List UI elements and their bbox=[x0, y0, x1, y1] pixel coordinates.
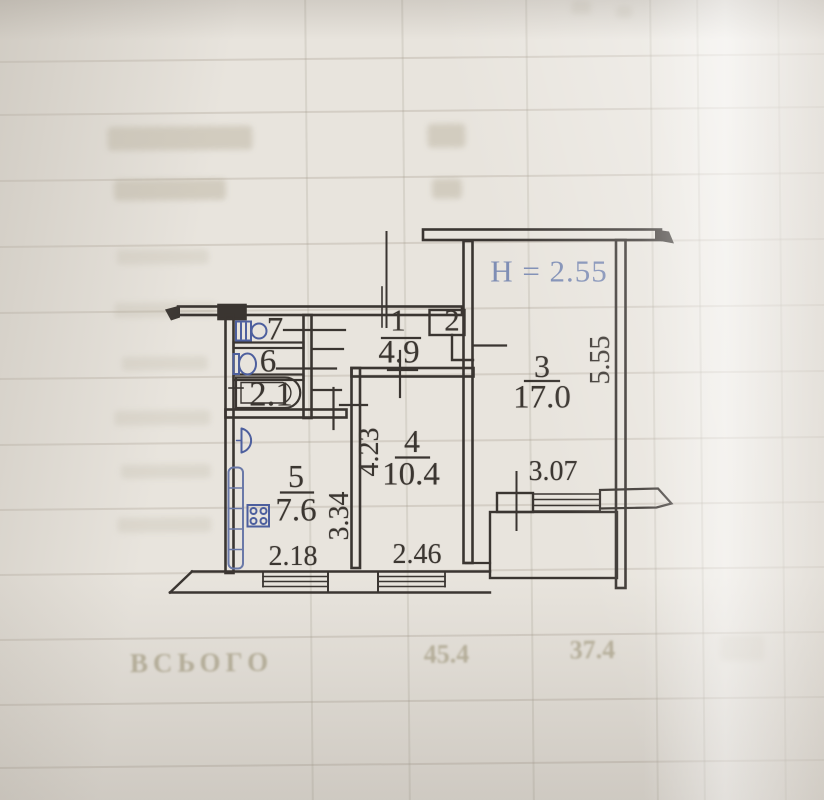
floor-plan-drawing bbox=[0, 0, 824, 800]
dim-kitchen-width: 2.18 bbox=[269, 543, 318, 571]
room-2-number: 2 bbox=[444, 305, 460, 336]
wall-top-left bbox=[165, 305, 462, 321]
dim-bedroom-width: 2.46 bbox=[393, 541, 442, 569]
room-3-number: 3 bbox=[534, 350, 550, 382]
dim-bedroom-depth: 4.23 bbox=[356, 428, 384, 477]
room-7-number: 7 bbox=[267, 314, 284, 347]
bathroom-area: 2.1 bbox=[249, 377, 293, 412]
room-5-number: 5 bbox=[288, 460, 304, 492]
room-1-area: 4.9 bbox=[378, 337, 419, 370]
bottom-wall bbox=[170, 572, 490, 593]
scanned-floor-plan-page: ВСЬОГО 45.4 37.4 bbox=[0, 0, 824, 800]
room-4-area: 10.4 bbox=[382, 459, 440, 492]
toilet-icon bbox=[234, 354, 257, 375]
room-1-number: 1 bbox=[390, 305, 406, 336]
dim-kitchen-depth: 3.34 bbox=[326, 492, 354, 541]
room-3-area: 17.0 bbox=[513, 382, 571, 415]
dim-living-depth: 5.55 bbox=[587, 336, 615, 385]
radiator-icon bbox=[229, 468, 244, 569]
kitchen-sink-icon bbox=[237, 429, 252, 453]
bedroom-window bbox=[378, 577, 445, 587]
room-5-area: 7.6 bbox=[275, 495, 316, 528]
dim-living-window-width: 3.07 bbox=[529, 458, 578, 486]
living-window-and-balcony bbox=[466, 489, 672, 579]
kitchen-window bbox=[263, 577, 328, 587]
room-4-number: 4 bbox=[404, 425, 420, 457]
balcony-slab bbox=[600, 489, 672, 509]
stove-icon bbox=[248, 505, 270, 527]
ceiling-height-note: H = 2.55 bbox=[490, 256, 608, 287]
washbasin-icon bbox=[236, 322, 267, 341]
balcony-outline bbox=[490, 512, 617, 578]
living-window bbox=[533, 494, 600, 511]
